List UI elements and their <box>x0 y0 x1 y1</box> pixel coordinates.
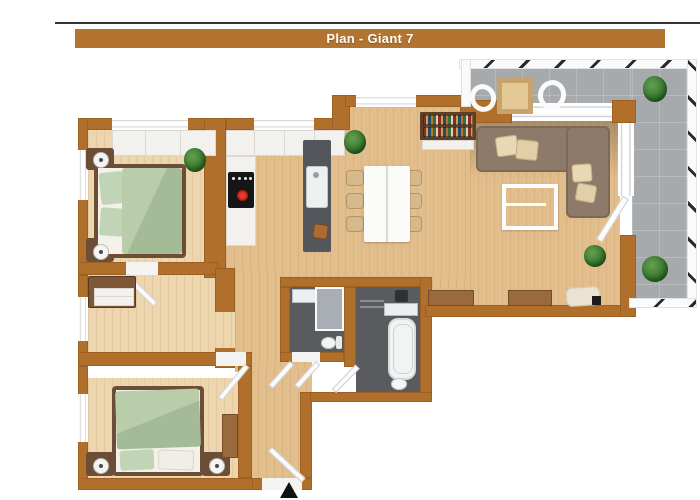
toilet <box>321 337 336 349</box>
shelf-line <box>360 306 384 308</box>
hallway-west-window <box>78 297 88 341</box>
coffee-table <box>502 184 558 230</box>
dining-chair <box>346 193 364 209</box>
toilet <box>391 378 407 390</box>
washbasin-counter <box>384 303 418 316</box>
floor-plan <box>0 0 700 500</box>
bedside-lamp <box>93 458 109 474</box>
dining-chair <box>346 216 364 232</box>
entry-east-wall <box>300 392 312 478</box>
bath-west-wall <box>280 287 290 362</box>
sofa-pillow <box>575 182 598 203</box>
bath-south-wall <box>310 392 432 402</box>
bath-divider-wall <box>344 287 356 367</box>
bathtub <box>388 318 416 380</box>
bedroom2-east-wall <box>238 366 252 478</box>
floor-plan-image: Plan - Giant 7 <box>0 0 700 500</box>
bedroom2-door-opening <box>216 352 246 366</box>
bedside-lamp <box>209 458 225 474</box>
stool <box>312 223 329 240</box>
bookshelf-base <box>422 140 474 150</box>
stove-knob <box>237 190 248 201</box>
sink-faucet <box>313 172 319 178</box>
living-north-wall-east <box>612 100 636 123</box>
terrace-railing-top <box>460 60 696 68</box>
dresser-drawers <box>94 288 134 306</box>
hallway-east-opening <box>215 312 235 348</box>
bed2-pillow <box>119 449 154 471</box>
bedside-lamp <box>93 152 109 168</box>
terrace-railing-bottom <box>630 299 696 307</box>
remote <box>592 296 601 305</box>
shower <box>315 287 344 331</box>
washer <box>395 290 408 302</box>
bed1-duvet <box>122 168 182 254</box>
bath-north-wall <box>280 277 432 287</box>
plant-terrace <box>643 76 667 102</box>
bedroom2-south-wall <box>78 478 268 490</box>
bookshelf-row <box>423 115 473 125</box>
vanity <box>292 289 316 303</box>
stove-controls <box>232 177 235 180</box>
sideboard <box>508 290 552 306</box>
plant-dining <box>344 130 366 154</box>
bedroom2-west-window <box>78 394 88 442</box>
bookshelf-row <box>423 127 473 137</box>
living-south-wall <box>425 305 636 317</box>
entrance-arrow <box>280 482 298 498</box>
plant-living <box>584 245 606 267</box>
kitchen-north-window <box>254 118 314 130</box>
terrace-table <box>497 78 533 114</box>
bedside-lamp <box>93 244 109 260</box>
plant-bedroom1 <box>184 148 206 172</box>
dining-north-window <box>356 95 416 107</box>
dining-chair <box>346 170 364 186</box>
dining-table <box>364 166 410 242</box>
sideboard <box>428 290 474 306</box>
bed2-pillow <box>158 449 195 470</box>
bedroom1-door-opening <box>126 262 158 275</box>
plant-terrace <box>642 256 668 282</box>
shelf-line <box>360 300 384 302</box>
bedroom1-north-window <box>112 118 188 130</box>
sofa-pillow <box>515 139 539 161</box>
toilet-tank <box>336 336 342 349</box>
bed2-duvet <box>115 389 201 450</box>
desk <box>222 414 238 458</box>
sofa-pillow <box>571 163 592 182</box>
living-east-window <box>618 123 634 196</box>
terrace-railing-right <box>688 60 696 307</box>
